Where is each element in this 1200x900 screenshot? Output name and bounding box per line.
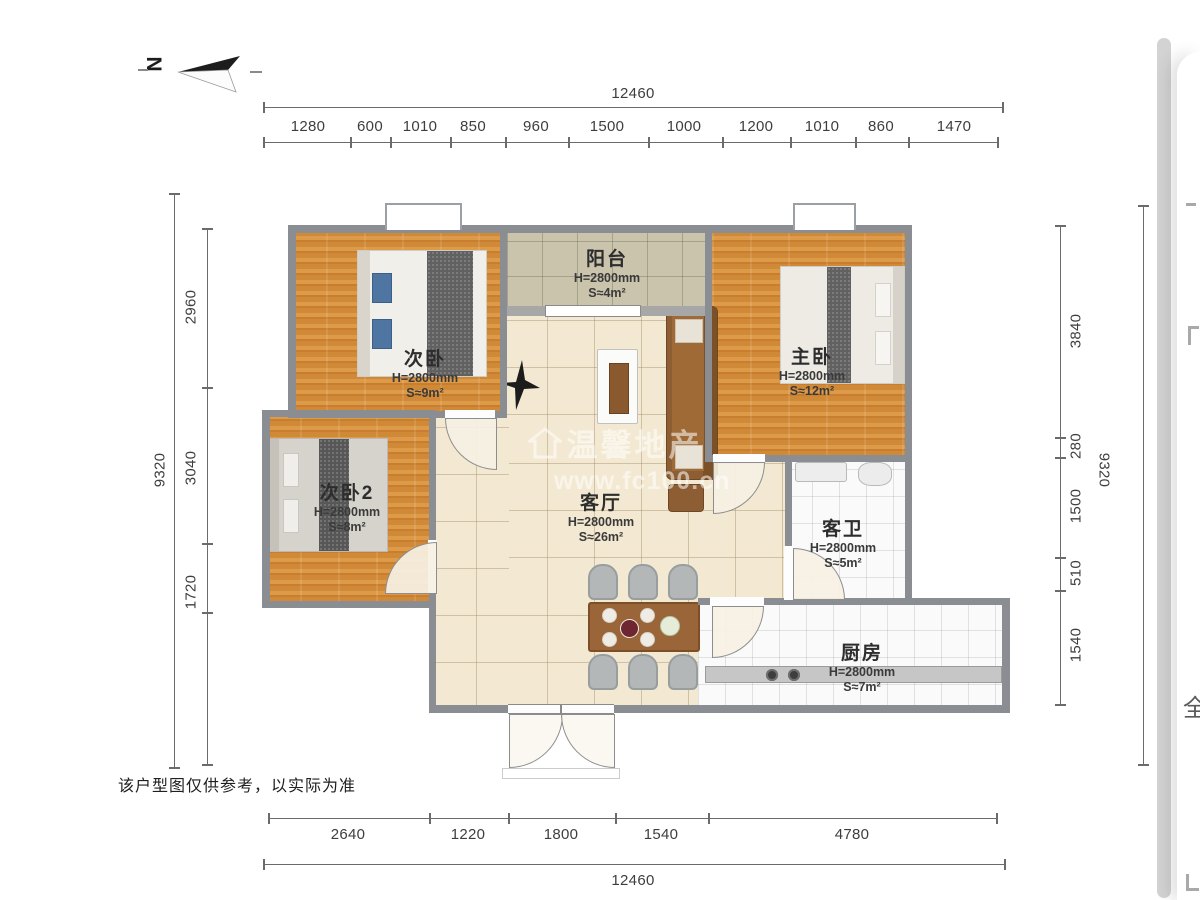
room-height: H=2800mm <box>392 371 458 386</box>
room-area: S≈4m² <box>574 286 640 301</box>
dim-tick <box>268 813 270 824</box>
dim-line <box>1143 205 1144 765</box>
dim-line <box>263 864 1005 865</box>
dim-tick <box>202 543 213 545</box>
wall-segment <box>500 225 507 418</box>
dim-tick <box>202 612 213 614</box>
dim-segment: 1010 <box>403 118 438 135</box>
room-area: S≈5m² <box>810 556 876 571</box>
room-area: S≈12m² <box>779 384 845 399</box>
plate <box>640 608 655 623</box>
dim-tick <box>505 137 507 148</box>
dim-tick <box>508 813 510 824</box>
entry-door-divider <box>560 704 562 714</box>
room-area: S≈9m² <box>392 386 458 401</box>
balcony-slider-door <box>545 305 641 317</box>
room-height: H=2800mm <box>568 515 634 530</box>
room-height: H=2800mm <box>314 505 380 520</box>
dim-tick <box>1055 225 1066 227</box>
room-area: S≈8m² <box>314 520 380 535</box>
room-label-living: 客厅 H=2800mm S≈26m² <box>568 492 634 545</box>
dim-segment: 960 <box>523 118 549 135</box>
bed-headboard <box>358 251 370 376</box>
dining-chair <box>588 654 618 690</box>
room-label-kitchen: 厨房 H=2800mm S≈7m² <box>829 642 895 695</box>
room-height: H=2800mm <box>779 369 845 384</box>
dim-tick <box>997 137 999 148</box>
room-label-master: 主卧 H=2800mm S≈12m² <box>779 346 845 399</box>
disclaimer-text: 该户型图仅供参考，以实际为准 <box>118 772 356 796</box>
dim-tick <box>568 137 570 148</box>
dim-segment: 2640 <box>331 826 366 843</box>
dim-tick <box>350 137 352 148</box>
door-opening <box>710 597 764 606</box>
window <box>385 203 462 230</box>
dim-segment: 850 <box>460 118 486 135</box>
dim-segment: 1010 <box>805 118 840 135</box>
dim-tick <box>1055 437 1066 439</box>
dim-tick <box>450 137 452 148</box>
wall-segment <box>262 410 270 608</box>
dim-segment: 1470 <box>937 118 972 135</box>
plate <box>640 632 655 647</box>
dim-tick <box>708 813 710 824</box>
wall-segment <box>500 225 712 233</box>
pillow <box>875 283 891 317</box>
dim-tick <box>1055 704 1066 706</box>
dim-tick <box>390 137 392 148</box>
dim-segment: 3840 <box>1068 314 1085 349</box>
dim-total-right: 9320 <box>1096 453 1113 488</box>
door-opening <box>784 546 793 600</box>
bathroom-sink <box>795 462 847 482</box>
dim-segment: 3040 <box>183 451 200 486</box>
dining-chair <box>668 564 698 600</box>
wall-segment <box>905 225 912 605</box>
dining-chair <box>588 564 618 600</box>
dim-segment: 1280 <box>291 118 326 135</box>
room-name: 厨房 <box>829 642 895 665</box>
wall-segment <box>288 225 296 418</box>
pillow <box>283 499 299 533</box>
north-dash <box>138 69 148 71</box>
dim-segment: 4780 <box>835 826 870 843</box>
watermark-brand: 温馨地产 <box>566 428 702 463</box>
bed-headboard <box>893 267 904 383</box>
side-scrollbar[interactable] <box>1157 38 1171 898</box>
dim-tick <box>855 137 857 148</box>
wall-segment <box>429 601 436 713</box>
north-dash <box>250 71 262 73</box>
dim-tick <box>202 387 213 389</box>
dim-line <box>263 107 1003 108</box>
floorplan-page: N <box>0 0 1200 900</box>
room-name: 次卧2 <box>314 482 380 505</box>
plate <box>602 632 617 647</box>
dim-segment: 1220 <box>451 826 486 843</box>
dim-total-top: 12460 <box>611 85 654 102</box>
entry-step <box>502 768 620 779</box>
dim-segment: 1500 <box>1068 489 1085 524</box>
dim-segment: 1540 <box>1068 628 1085 663</box>
room-area: S≈7m² <box>829 680 895 695</box>
dim-line <box>263 142 998 143</box>
side-panel-partial-text: 全 <box>1183 688 1200 723</box>
dim-segment: 1000 <box>667 118 702 135</box>
side-panel-partial-stroke <box>1188 326 1199 345</box>
room-name: 主卧 <box>779 346 845 369</box>
dim-tick <box>1055 457 1066 459</box>
stove-burner <box>788 669 800 681</box>
dim-segment: 1200 <box>739 118 774 135</box>
room-label-bathroom: 客卫 H=2800mm S≈5m² <box>810 518 876 571</box>
dining-chair <box>628 654 658 690</box>
stove-burner <box>766 669 778 681</box>
dim-tick <box>202 228 213 230</box>
wall-segment <box>262 601 436 608</box>
pillow <box>875 331 891 365</box>
dim-segment: 280 <box>1068 433 1085 459</box>
room-height: H=2800mm <box>829 665 895 680</box>
dim-tick <box>615 813 617 824</box>
wall-segment <box>262 410 436 417</box>
wall-segment <box>1002 598 1010 713</box>
room-height: H=2800mm <box>810 541 876 556</box>
dim-tick <box>263 102 265 113</box>
room-label-bedroom2: 次卧 H=2800mm S≈9m² <box>392 348 458 401</box>
room-name: 次卧 <box>392 348 458 371</box>
sofa-pillow <box>675 319 703 343</box>
dim-line <box>174 193 175 768</box>
pillow <box>283 453 299 487</box>
dim-tick <box>263 859 265 870</box>
dim-tick <box>648 137 650 148</box>
dim-tick <box>1055 557 1066 559</box>
flower-vase <box>660 616 680 636</box>
dim-tick <box>169 767 180 769</box>
dim-tick <box>1002 102 1004 113</box>
dim-tick <box>429 813 431 824</box>
fruit-bowl <box>620 619 639 638</box>
dim-tick <box>202 764 213 766</box>
house-icon <box>528 427 562 459</box>
pillow <box>372 319 392 349</box>
room-name: 客卫 <box>810 518 876 541</box>
dim-line <box>207 228 208 765</box>
dim-tick <box>1055 590 1066 592</box>
room-height: H=2800mm <box>574 271 640 286</box>
dim-tick <box>722 137 724 148</box>
watermark: 温馨地产 www.fc100.cn <box>528 420 728 496</box>
dim-line <box>268 818 997 819</box>
room-area: S≈26m² <box>568 530 634 545</box>
toilet <box>858 462 892 486</box>
dim-segment: 1500 <box>590 118 625 135</box>
dim-segment: 600 <box>357 118 383 135</box>
room-label-bedroom3: 次卧2 H=2800mm S≈8m² <box>314 482 380 535</box>
dim-tick <box>790 137 792 148</box>
dim-segment: 860 <box>868 118 894 135</box>
side-panel-card <box>1177 52 1200 900</box>
tv-icon <box>609 363 629 414</box>
pillow <box>372 273 392 303</box>
dim-tick <box>1138 764 1149 766</box>
dim-line <box>1060 225 1061 705</box>
dim-segment: 510 <box>1068 560 1085 586</box>
window <box>793 203 856 230</box>
side-panel-partial-stroke <box>1186 874 1199 891</box>
plate <box>602 608 617 623</box>
dining-chair <box>628 564 658 600</box>
watermark-url: www.fc100.cn <box>554 467 728 496</box>
dim-total-bottom: 12460 <box>611 872 654 889</box>
dim-total-left: 9320 <box>152 453 169 488</box>
dim-tick <box>908 137 910 148</box>
side-panel-partial-stroke <box>1186 203 1196 206</box>
tv-cabinet <box>597 349 638 424</box>
dim-segment: 1720 <box>183 575 200 610</box>
dining-table <box>588 602 700 652</box>
room-label-balcony: 阳台 H=2800mm S≈4m² <box>574 248 640 301</box>
entry-door-arc-left <box>509 714 563 768</box>
dim-segment: 2960 <box>183 290 200 325</box>
dining-chair <box>668 654 698 690</box>
north-arrow-icon <box>172 48 244 98</box>
room-name: 阳台 <box>574 248 640 271</box>
dim-segment: 1800 <box>544 826 579 843</box>
dim-tick <box>1004 859 1006 870</box>
entry-door-arc-right <box>561 714 615 768</box>
dim-tick <box>169 193 180 195</box>
dim-tick <box>1138 205 1149 207</box>
dim-tick <box>263 137 265 148</box>
dim-segment: 1540 <box>644 826 679 843</box>
dim-tick <box>996 813 998 824</box>
